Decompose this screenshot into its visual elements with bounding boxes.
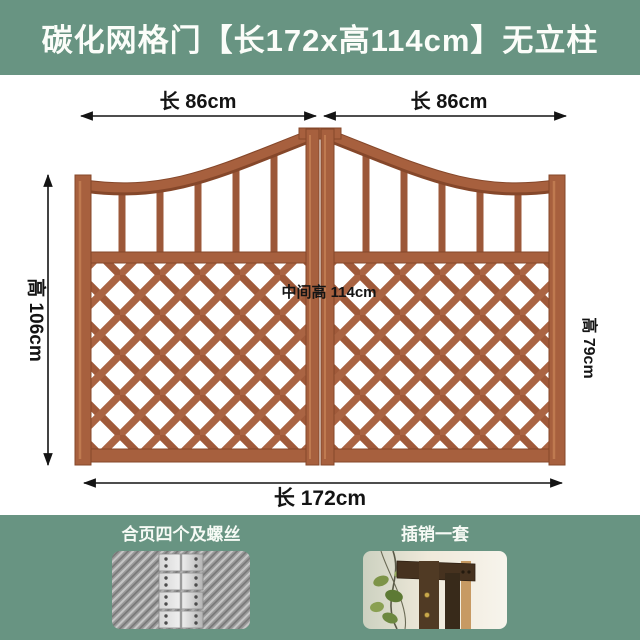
dim-label-bottom: 长 172cm [274,487,366,510]
apex-cap [299,128,341,139]
header-banner: 碳化网格门【长172x高114cm】无立柱 [0,0,640,75]
bottom-rail-left [88,449,310,462]
top-rail-left [84,134,313,189]
dim-label-center-height: 中间高 114cm [281,283,376,301]
hinges-photo [112,551,250,629]
bottom-rail-right [330,449,552,462]
gate-diagram-svg: 长 86cm 长 86cm 高 106cm 中间高 114cm 高 79cm 长… [0,75,640,515]
middle-rail-left [88,252,309,263]
product-title: 碳化网格门【长172x高114cm】无立柱 [42,15,599,60]
stile-left [75,175,91,465]
dim-label-left-height: 高 106cm [25,278,48,361]
gate-diagram: 长 86cm 长 86cm 高 106cm 中间高 114cm 高 79cm 长… [0,75,640,515]
dim-label-right-height: 高 79cm [580,317,599,378]
stile-right [549,175,565,465]
middle-rail-right [331,252,552,263]
accessory-card-latch: 插销一套 [363,524,507,629]
latch-label: 插销一套 [363,524,507,546]
footer-accessories [0,515,640,640]
dim-label-top-left: 长 86cm [160,90,237,113]
latch-photo [363,551,507,629]
dim-label-top-right: 长 86cm [411,90,488,113]
top-rail-right [327,134,556,189]
lattice-left [91,263,307,449]
hinges-label: 合页四个及螺丝 [112,524,250,546]
accessory-card-hinges: 合页四个及螺丝 [112,524,250,629]
